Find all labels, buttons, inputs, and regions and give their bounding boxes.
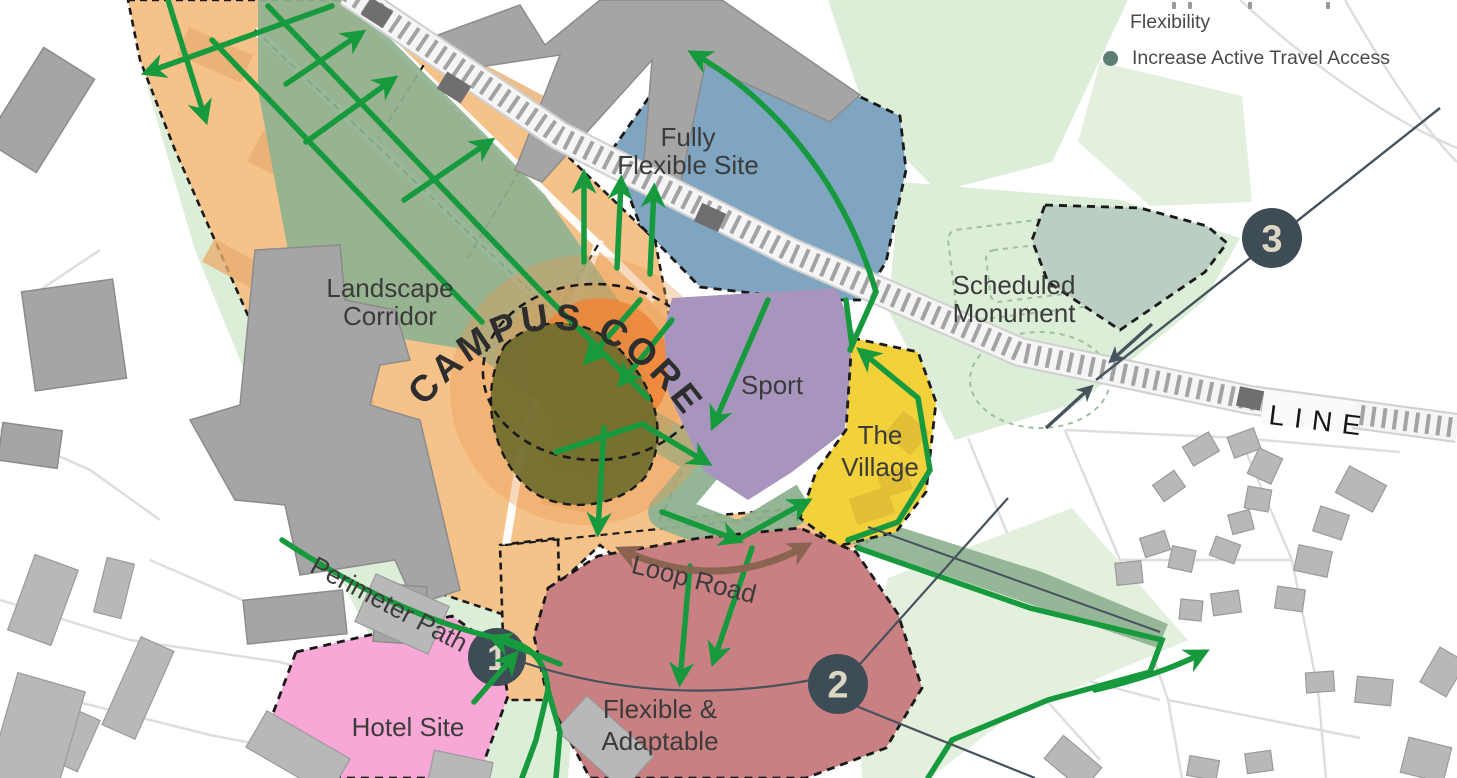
marker-2: 2: [808, 654, 868, 714]
clipped-legend-line: [1130, 0, 1436, 9]
masterplan-map: LINE 1: [0, 0, 1457, 778]
legend-item-active-travel: Increase Active Travel Access: [1096, 45, 1436, 71]
marker-2-label: 2: [827, 665, 848, 707]
map-canvas: LINE 1: [0, 0, 1457, 778]
label-flexible-1: Flexible &: [603, 694, 717, 724]
label-monument-2: Monument: [953, 298, 1077, 328]
label-village-1: The: [858, 420, 903, 450]
legend-item-active-travel-label: Increase Active Travel Access: [1132, 45, 1390, 71]
legend-item-flexibility: Flexibility: [1130, 9, 1436, 35]
label-fully-flexible-1: Fully: [661, 122, 716, 152]
marker-3-label: 3: [1261, 219, 1282, 261]
label-sport: Sport: [741, 370, 804, 400]
label-landscape-1: Landscape: [326, 273, 453, 303]
legend-bullet-icon: [1103, 51, 1118, 66]
label-village-2: Village: [841, 452, 919, 482]
label-landscape-2: Corridor: [343, 301, 437, 331]
label-monument-1: Scheduled: [953, 270, 1076, 300]
label-hotel-site: Hotel Site: [352, 712, 465, 742]
label-flexible-2: Adaptable: [601, 726, 718, 756]
label-fully-flexible-2: Flexible Site: [617, 150, 759, 180]
legend: Flexibility Increase Active Travel Acces…: [1096, 0, 1436, 72]
marker-3: 3: [1242, 208, 1302, 268]
